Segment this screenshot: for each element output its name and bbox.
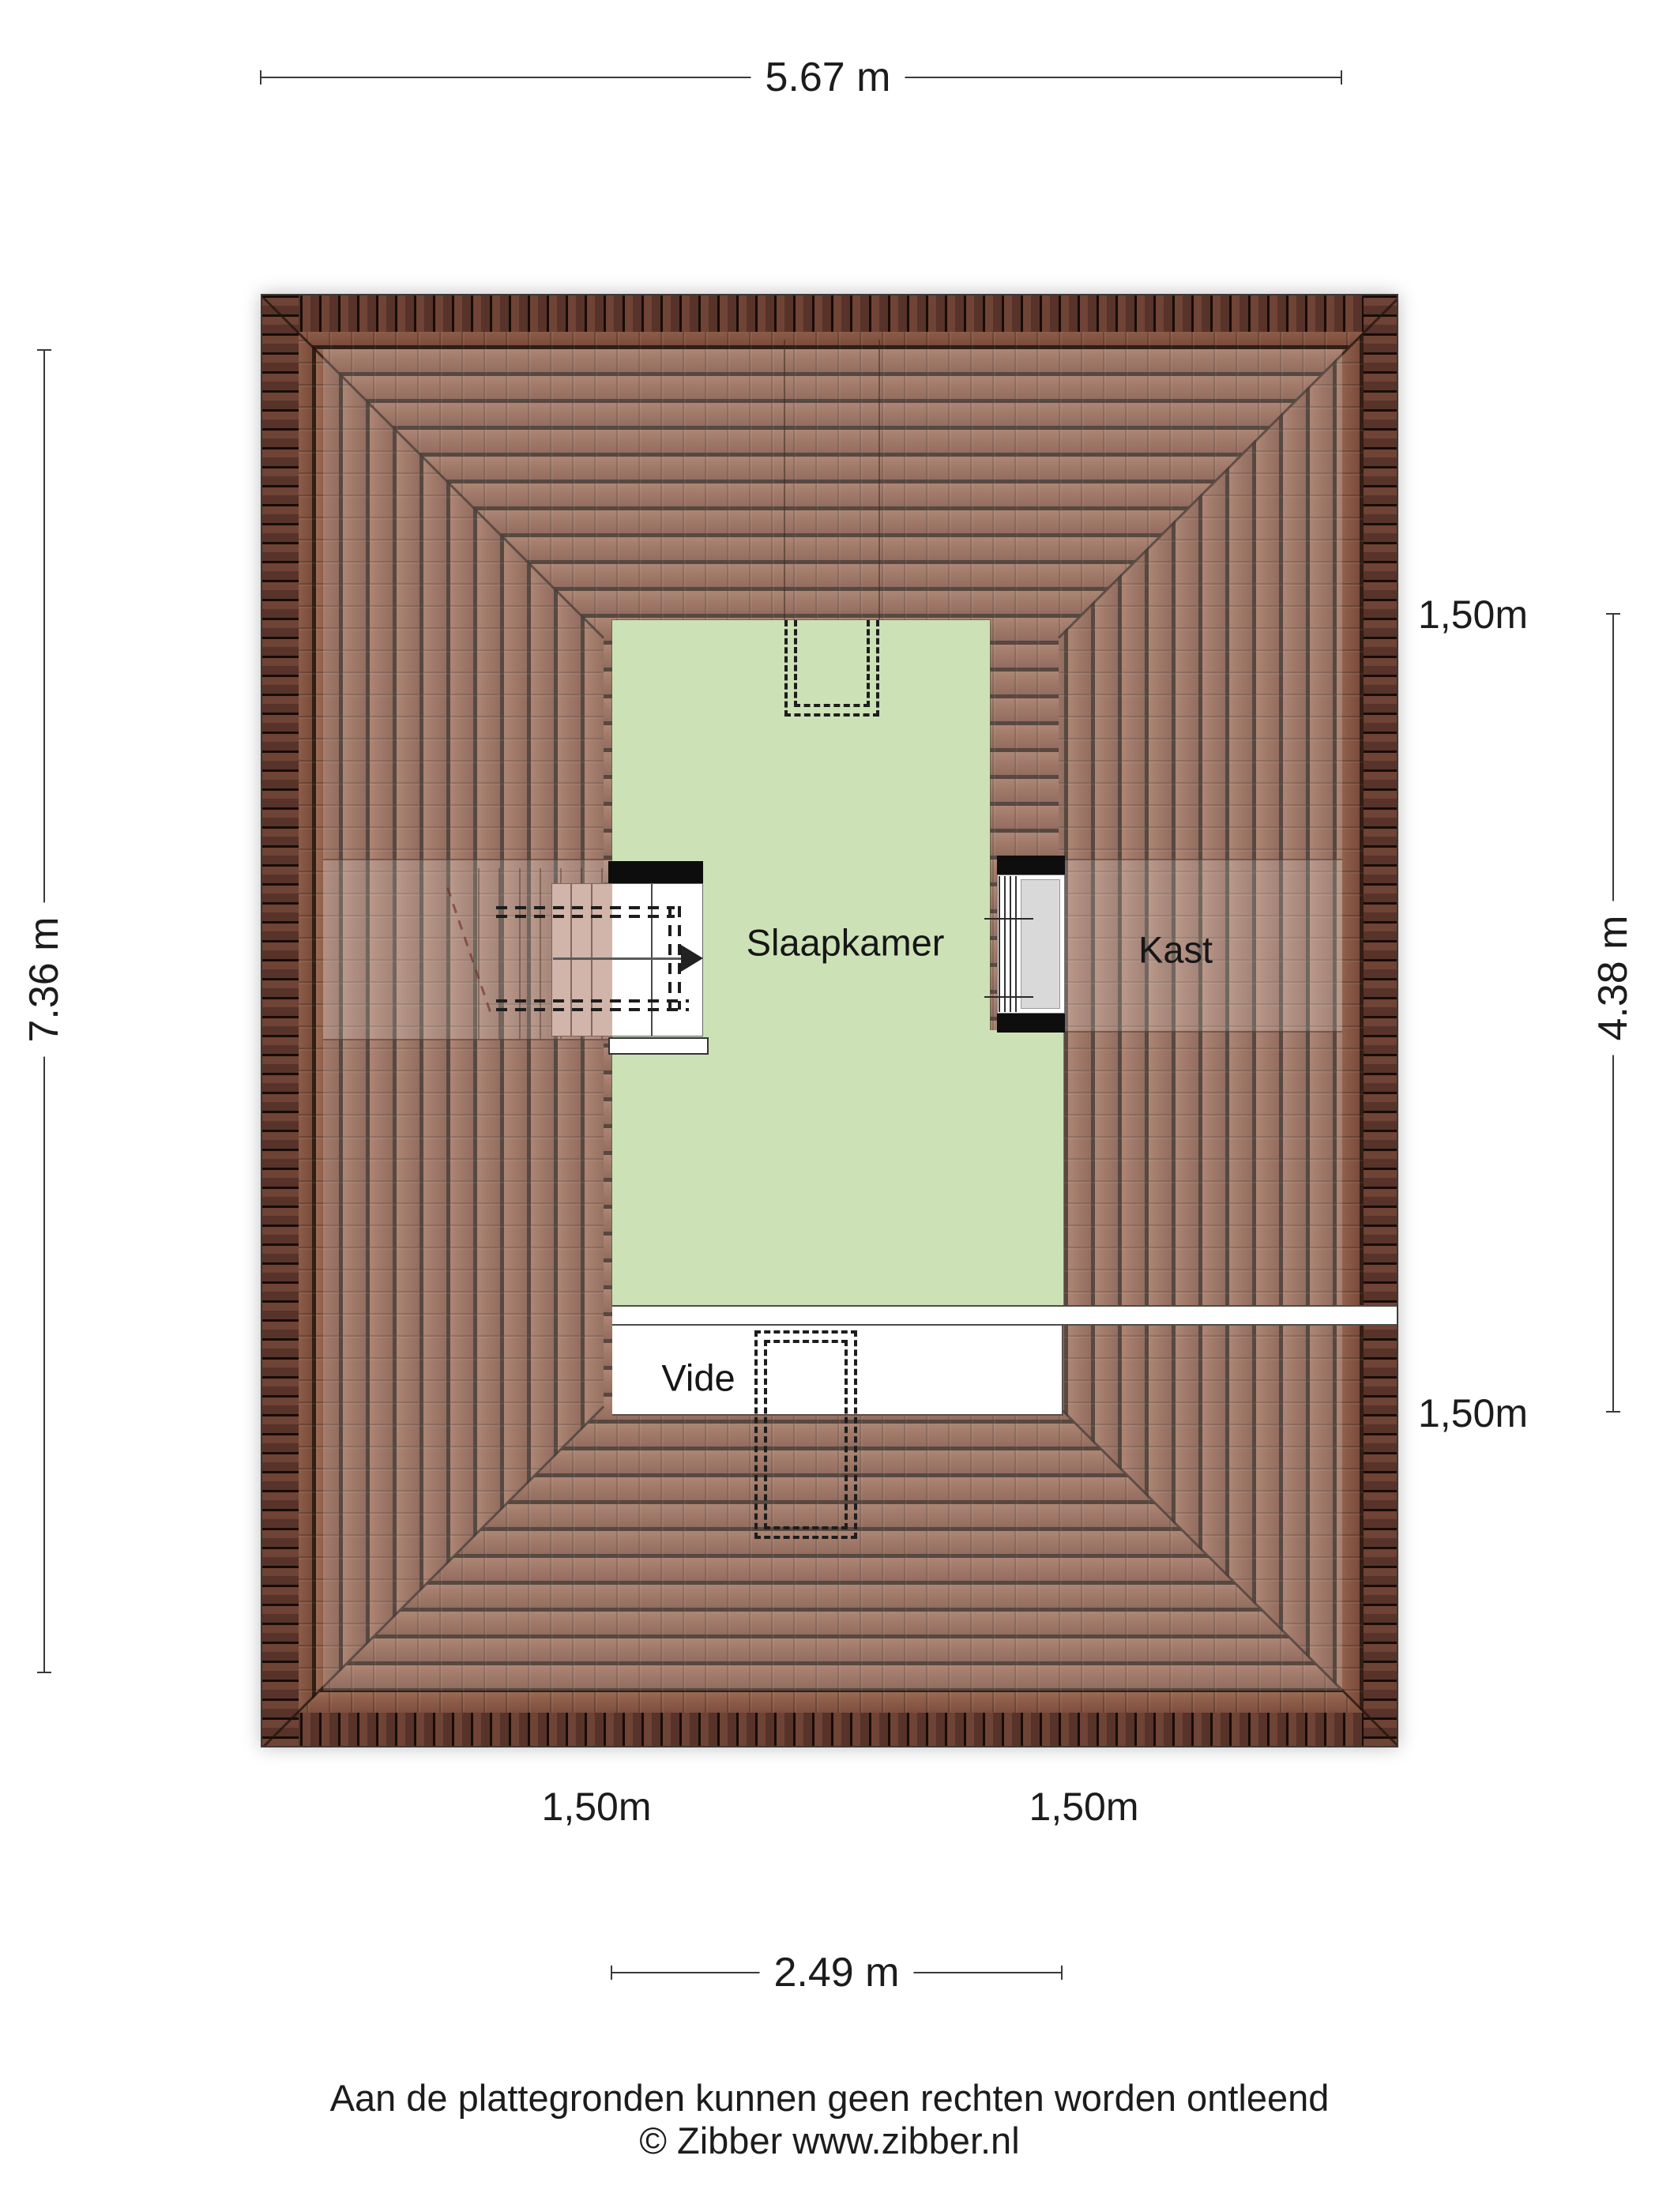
window-swing-line-lower xyxy=(984,996,1033,998)
dimension-tick xyxy=(37,1672,51,1673)
footer-credit: © Zibber www.zibber.nl xyxy=(0,2120,1659,2161)
dimension-label-bottom: 2.49 m xyxy=(760,1947,914,1998)
window-panel xyxy=(1021,879,1060,1009)
stair-arrow-head xyxy=(681,945,703,972)
dimension-tick xyxy=(611,1966,612,1980)
window-glazing-lines xyxy=(999,876,1019,1012)
dimension-tick xyxy=(260,70,261,85)
stair-dashed-bottom-b xyxy=(496,1008,689,1011)
vide-gutter-band xyxy=(612,1305,1397,1326)
stair-dashed-side-a xyxy=(668,906,671,1010)
stair-dashed-bottom-a xyxy=(496,999,689,1003)
dimension-label-left: 7.36 m xyxy=(19,903,70,1057)
clearance-label-bottom-left: 1,50m xyxy=(542,1787,652,1826)
clearance-label-right-top: 1,50m xyxy=(1418,595,1528,634)
dimension-tick xyxy=(1606,1411,1620,1413)
clearance-label-bottom-right: 1,50m xyxy=(1029,1787,1139,1826)
roof-ridge-right xyxy=(1364,295,1398,1747)
window-wall-top xyxy=(997,856,1065,875)
dimension-label-right: 4.38 m xyxy=(1588,901,1638,1055)
dimension-label-top: 5.67 m xyxy=(751,52,905,103)
dimension-tick xyxy=(37,349,51,351)
dormer-window-outline-bottom-inner xyxy=(764,1340,848,1529)
stair-wall xyxy=(608,861,703,883)
room-slaapkamer-extension xyxy=(990,1030,1063,1305)
roof-ridge-bottom xyxy=(262,1713,1398,1747)
dormer-side-line-right xyxy=(878,340,880,622)
dimension-tick xyxy=(1606,613,1620,615)
window-wall-bottom xyxy=(997,1014,1065,1033)
room-label-slaapkamer: Slaapkamer xyxy=(747,924,945,961)
clearance-label-right-bottom: 1,50m xyxy=(1418,1394,1528,1433)
room-label-vide: Vide xyxy=(661,1360,735,1397)
window-swing-line-upper xyxy=(984,918,1033,920)
stair-dashed-top-b xyxy=(496,915,675,918)
dormer-window-outline-top-inner xyxy=(794,620,870,707)
dormer-side-line-left xyxy=(784,340,785,622)
stair-dashed-side-b xyxy=(678,906,681,1010)
roof-ridge-left xyxy=(262,295,299,1747)
footer-disclaimer: Aan de plattegronden kunnen geen rechten… xyxy=(0,2078,1659,2119)
floorplan-sheet: Slaapkamer Kast Vide 5.67 m 7.36 m 4. xyxy=(0,0,1659,2212)
stair-dashed-top-a xyxy=(496,906,675,909)
room-label-kast: Kast xyxy=(1138,931,1213,969)
roof-ridge-top xyxy=(262,295,1398,332)
dimension-tick xyxy=(1061,1966,1063,1980)
stair-landing-strip xyxy=(608,1037,709,1055)
dimension-tick xyxy=(1341,70,1342,85)
